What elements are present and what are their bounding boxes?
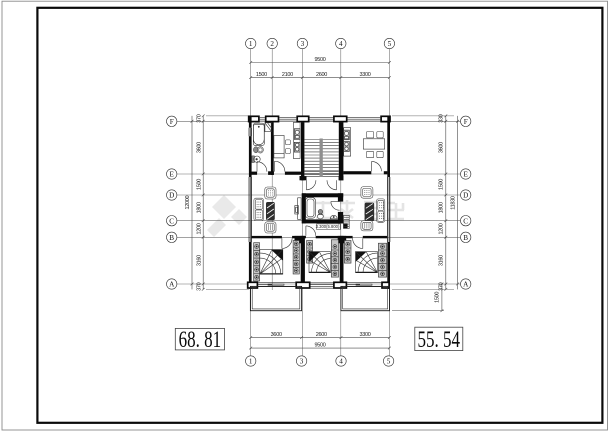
svg-text:4: 4 bbox=[339, 358, 343, 366]
svg-text:11830: 11830 bbox=[450, 196, 456, 210]
svg-text:D: D bbox=[463, 192, 468, 200]
svg-text:F: F bbox=[170, 118, 174, 126]
svg-text:370: 370 bbox=[196, 282, 202, 291]
svg-text:3600: 3600 bbox=[271, 332, 282, 338]
svg-text:F: F bbox=[464, 118, 468, 126]
svg-text:B: B bbox=[463, 234, 468, 242]
svg-text:4: 4 bbox=[339, 40, 343, 48]
svg-text:A: A bbox=[463, 281, 469, 289]
svg-text:9500: 9500 bbox=[314, 57, 325, 63]
svg-text:3.300(5.800): 3.300(5.800) bbox=[316, 224, 340, 229]
svg-text:1800: 1800 bbox=[196, 202, 202, 213]
svg-text:C: C bbox=[463, 217, 468, 225]
svg-text:1500: 1500 bbox=[196, 179, 202, 190]
svg-text:68. 81: 68. 81 bbox=[179, 327, 222, 352]
svg-text:1200: 1200 bbox=[439, 223, 445, 234]
svg-text:5: 5 bbox=[388, 40, 392, 48]
svg-text:D: D bbox=[169, 192, 174, 200]
svg-text:1500: 1500 bbox=[256, 72, 267, 78]
svg-text:330: 330 bbox=[439, 114, 445, 123]
svg-text:2: 2 bbox=[270, 40, 274, 48]
svg-text:1500: 1500 bbox=[439, 179, 445, 190]
svg-text:E: E bbox=[464, 171, 469, 179]
svg-text:1500: 1500 bbox=[435, 292, 441, 303]
svg-text:1: 1 bbox=[249, 40, 253, 48]
svg-text:C: C bbox=[169, 217, 174, 225]
svg-text:3600: 3600 bbox=[439, 142, 445, 153]
svg-text:1800: 1800 bbox=[439, 202, 445, 213]
svg-text:A: A bbox=[169, 281, 175, 289]
svg-text:3: 3 bbox=[300, 358, 304, 366]
svg-text:3160: 3160 bbox=[196, 255, 202, 266]
svg-text:5: 5 bbox=[387, 358, 391, 366]
svg-text:1: 1 bbox=[249, 358, 253, 366]
svg-text:B: B bbox=[169, 234, 174, 242]
svg-text:E: E bbox=[170, 171, 175, 179]
svg-text:370: 370 bbox=[196, 114, 202, 123]
svg-text:3300: 3300 bbox=[359, 72, 370, 78]
svg-text:3300: 3300 bbox=[359, 332, 370, 338]
svg-text:3: 3 bbox=[301, 40, 305, 48]
svg-text:3600: 3600 bbox=[196, 142, 202, 153]
svg-text:2600: 2600 bbox=[316, 332, 327, 338]
svg-text:9500: 9500 bbox=[314, 343, 325, 349]
svg-text:55. 54: 55. 54 bbox=[418, 327, 461, 352]
svg-text:2600: 2600 bbox=[316, 72, 327, 78]
svg-text:1200: 1200 bbox=[196, 223, 202, 234]
svg-text:3160: 3160 bbox=[439, 255, 445, 266]
svg-text:12000: 12000 bbox=[185, 195, 191, 209]
svg-text:2100: 2100 bbox=[282, 72, 293, 78]
